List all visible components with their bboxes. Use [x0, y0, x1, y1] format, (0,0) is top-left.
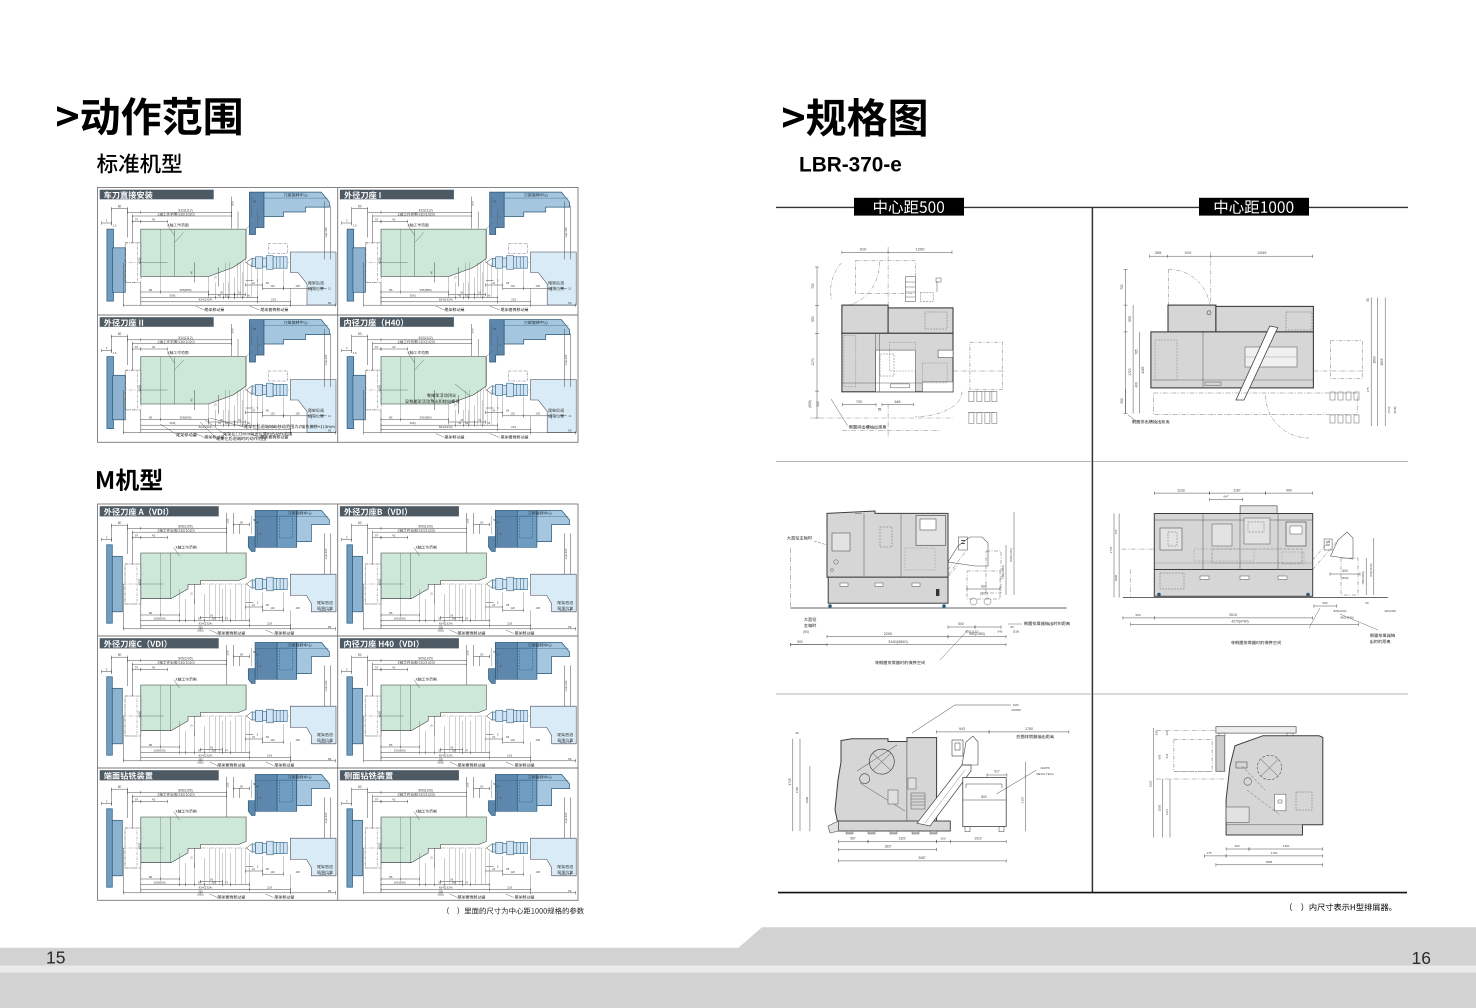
svg-text:700(1000): 700(1000): [1361, 571, 1365, 584]
svg-text:820(1132): 820(1132): [1334, 609, 1347, 613]
svg-text:3087: 3087: [918, 856, 925, 860]
svg-text:531: 531: [1165, 753, 1169, 758]
svg-text:1290: 1290: [916, 246, 926, 251]
svg-text:1720: 1720: [1128, 368, 1132, 376]
svg-text:(538): (538): [1393, 406, 1397, 413]
svg-text:242976: 242976: [1040, 766, 1050, 770]
svg-text:(318): (318): [1013, 630, 1020, 634]
svg-text:910: 910: [1185, 250, 1192, 255]
svg-text:832(1372): 832(1372): [1009, 548, 1013, 562]
svg-text:(90): (90): [803, 630, 809, 634]
svg-text:1000: 1000: [1157, 804, 1161, 811]
svg-text:1000: 1000: [1114, 574, 1118, 581]
svg-text:685: 685: [1158, 754, 1162, 759]
svg-text:400: 400: [1234, 844, 1239, 848]
svg-text:1100: 1100: [795, 786, 799, 793]
svg-text:910: 910: [860, 246, 867, 251]
svg-text:2045: 2045: [1258, 250, 1268, 255]
svg-text:500: 500: [1135, 613, 1140, 617]
svg-text:50: 50: [1365, 601, 1369, 605]
svg-text:45: 45: [795, 731, 799, 735]
svg-text:1720: 1720: [1271, 851, 1278, 855]
svg-text:555: 555: [1128, 316, 1132, 322]
svg-text:(800): (800): [1341, 576, 1348, 580]
svg-text:FMC: FMC: [1013, 703, 1019, 707]
svg-text:567: 567: [850, 837, 856, 841]
svg-text:1165: 1165: [1141, 366, 1145, 373]
svg-text:355: 355: [1155, 250, 1162, 255]
svg-text:1925: 1925: [1149, 780, 1153, 787]
svg-text:(800): (800): [980, 592, 987, 596]
svg-text:832(1372): 832(1372): [1369, 563, 1373, 576]
svg-text:175: 175: [1366, 387, 1370, 392]
svg-text:LBR-370-e: LBR-370-e: [799, 154, 902, 177]
svg-text:1895: 1895: [1266, 860, 1273, 864]
svg-text:720: 720: [856, 400, 862, 404]
svg-text:(600): (600): [808, 400, 812, 407]
svg-text:4270(4760): 4270(4760): [1231, 620, 1248, 624]
svg-text:242999: 242999: [1011, 708, 1021, 712]
svg-text:1827: 1827: [884, 845, 891, 849]
svg-text:1133: 1133: [1177, 488, 1184, 492]
svg-text:50: 50: [1010, 625, 1014, 629]
svg-text:1000: 1000: [805, 796, 809, 803]
svg-text:175: 175: [1206, 851, 1211, 855]
svg-text:1695: 1695: [1380, 358, 1384, 365]
svg-text:1320: 1320: [898, 837, 905, 841]
svg-text:METAL TECH: METAL TECH: [1036, 772, 1053, 776]
svg-text:1770: 1770: [1109, 546, 1113, 553]
svg-text:1745: 1745: [788, 778, 792, 785]
svg-text:140(318): 140(318): [1384, 609, 1396, 613]
svg-text:400: 400: [1135, 382, 1139, 388]
svg-text:1690: 1690: [1373, 356, 1377, 363]
svg-text:240: 240: [1154, 730, 1158, 735]
svg-text:600: 600: [981, 585, 987, 589]
svg-text:600: 600: [1342, 569, 1348, 573]
svg-text:1320: 1320: [1283, 844, 1290, 848]
svg-text:(713): (713): [1387, 406, 1391, 413]
svg-text:647: 647: [1223, 495, 1228, 499]
svg-text:765: 765: [1135, 349, 1139, 355]
svg-text:3160(3650): 3160(3650): [888, 640, 908, 644]
svg-text:540: 540: [998, 630, 1003, 634]
svg-text:2200: 2200: [884, 632, 892, 636]
svg-text:646: 646: [895, 400, 901, 404]
svg-text:990: 990: [1286, 488, 1292, 492]
svg-text:500: 500: [797, 640, 803, 644]
svg-text:220: 220: [1165, 730, 1169, 735]
svg-text:800: 800: [981, 795, 987, 799]
svg-text:3010: 3010: [1229, 613, 1237, 617]
svg-text:943: 943: [959, 727, 965, 731]
svg-text:1010: 1010: [974, 837, 981, 841]
svg-text:700(1000): 700(1000): [1001, 565, 1005, 579]
svg-text:30: 30: [1366, 298, 1370, 302]
svg-text:730: 730: [811, 283, 815, 289]
svg-text:1750: 1750: [1025, 727, 1033, 731]
svg-text:500: 500: [958, 622, 964, 626]
svg-text:16: 16: [1412, 948, 1431, 968]
svg-text:550: 550: [811, 316, 815, 322]
svg-text:15: 15: [46, 948, 65, 968]
svg-text:770: 770: [1114, 529, 1118, 534]
svg-text:250: 250: [940, 837, 945, 841]
svg-text:1170: 1170: [811, 358, 815, 365]
svg-text:1174: 1174: [1165, 809, 1169, 816]
svg-text:1187: 1187: [1233, 488, 1240, 492]
svg-text:517: 517: [994, 770, 1000, 774]
svg-text:500: 500: [1120, 398, 1124, 404]
svg-text:820(1132): 820(1132): [965, 630, 978, 634]
svg-text:500: 500: [1322, 601, 1327, 605]
svg-text:1307: 1307: [1021, 796, 1025, 803]
svg-text:500: 500: [816, 401, 820, 407]
svg-text:730: 730: [1120, 284, 1124, 290]
svg-text:58: 58: [878, 407, 882, 411]
